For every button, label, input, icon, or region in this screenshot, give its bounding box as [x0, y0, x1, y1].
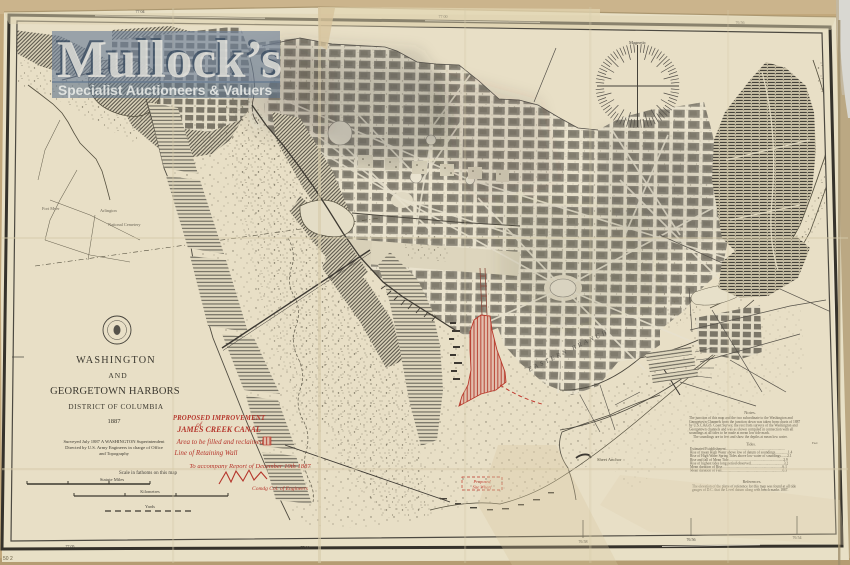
svg-text:Notes.: Notes.: [744, 410, 756, 415]
svg-text:Comdg Col. of Engineers: Comdg Col. of Engineers: [252, 485, 308, 492]
svg-text:Feet: Feet: [812, 441, 818, 445]
svg-text:50 2: 50 2: [3, 556, 13, 562]
svg-text:76 56: 76 56: [687, 537, 696, 542]
svg-text:DISTRICT OF COLUMBIA: DISTRICT OF COLUMBIA: [68, 403, 164, 411]
svg-text:Sheet Anchor: Sheet Anchor: [597, 457, 622, 462]
svg-text:Specialist Auctioneers & Value: Specialist Auctioneers & Valuers: [58, 83, 273, 98]
svg-text:Area to be filled and reclaime: Area to be filled and reclaimed: [176, 438, 264, 446]
svg-text:77 05: 77 05: [66, 544, 75, 549]
svg-text:and Topography: and Topography: [99, 451, 130, 456]
svg-text:References.: References.: [743, 479, 762, 484]
svg-text:Kilometres: Kilometres: [140, 489, 160, 494]
svg-text:77 00: 77 00: [301, 545, 310, 550]
svg-text:PROPOSED IMPROVEMENT: PROPOSED IMPROVEMENT: [173, 415, 266, 422]
svg-text:GEORGETOWN HARBORS: GEORGETOWN HARBORS: [50, 386, 180, 397]
svg-text:Line of Retaining Wall: Line of Retaining Wall: [174, 449, 238, 457]
svg-text:JAMES CREEK CANAL: JAMES CREEK CANAL: [176, 425, 261, 434]
svg-text:The soundings are in feet and: The soundings are in feet and show the d…: [693, 435, 788, 439]
svg-text:Scale in fathoms on this map: Scale in fathoms on this map: [119, 471, 177, 476]
svg-text:Magnetic: Magnetic: [629, 40, 646, 45]
svg-text:Statute Miles: Statute Miles: [100, 477, 125, 482]
svg-text:Arlington: Arlington: [100, 208, 118, 213]
svg-text:Fort Myer: Fort Myer: [42, 206, 60, 211]
svg-text:Tides.: Tides.: [746, 442, 756, 447]
svg-text:Mullock’s: Mullock’s: [57, 31, 282, 89]
svg-text:1887: 1887: [108, 418, 122, 425]
svg-text:Directed by U.S. Army Engineer: Directed by U.S. Army Engineers in charg…: [65, 445, 163, 450]
svg-text:WASHINGTON: WASHINGTON: [76, 355, 156, 366]
svg-text:Yards: Yards: [145, 504, 155, 509]
svg-text:National Cemetery: National Cemetery: [108, 222, 141, 227]
svg-text:AND: AND: [108, 371, 127, 380]
svg-text:Surveyed July 1887 A WASHINGTO: Surveyed July 1887 A WASHINGTON Superint…: [63, 439, 165, 444]
